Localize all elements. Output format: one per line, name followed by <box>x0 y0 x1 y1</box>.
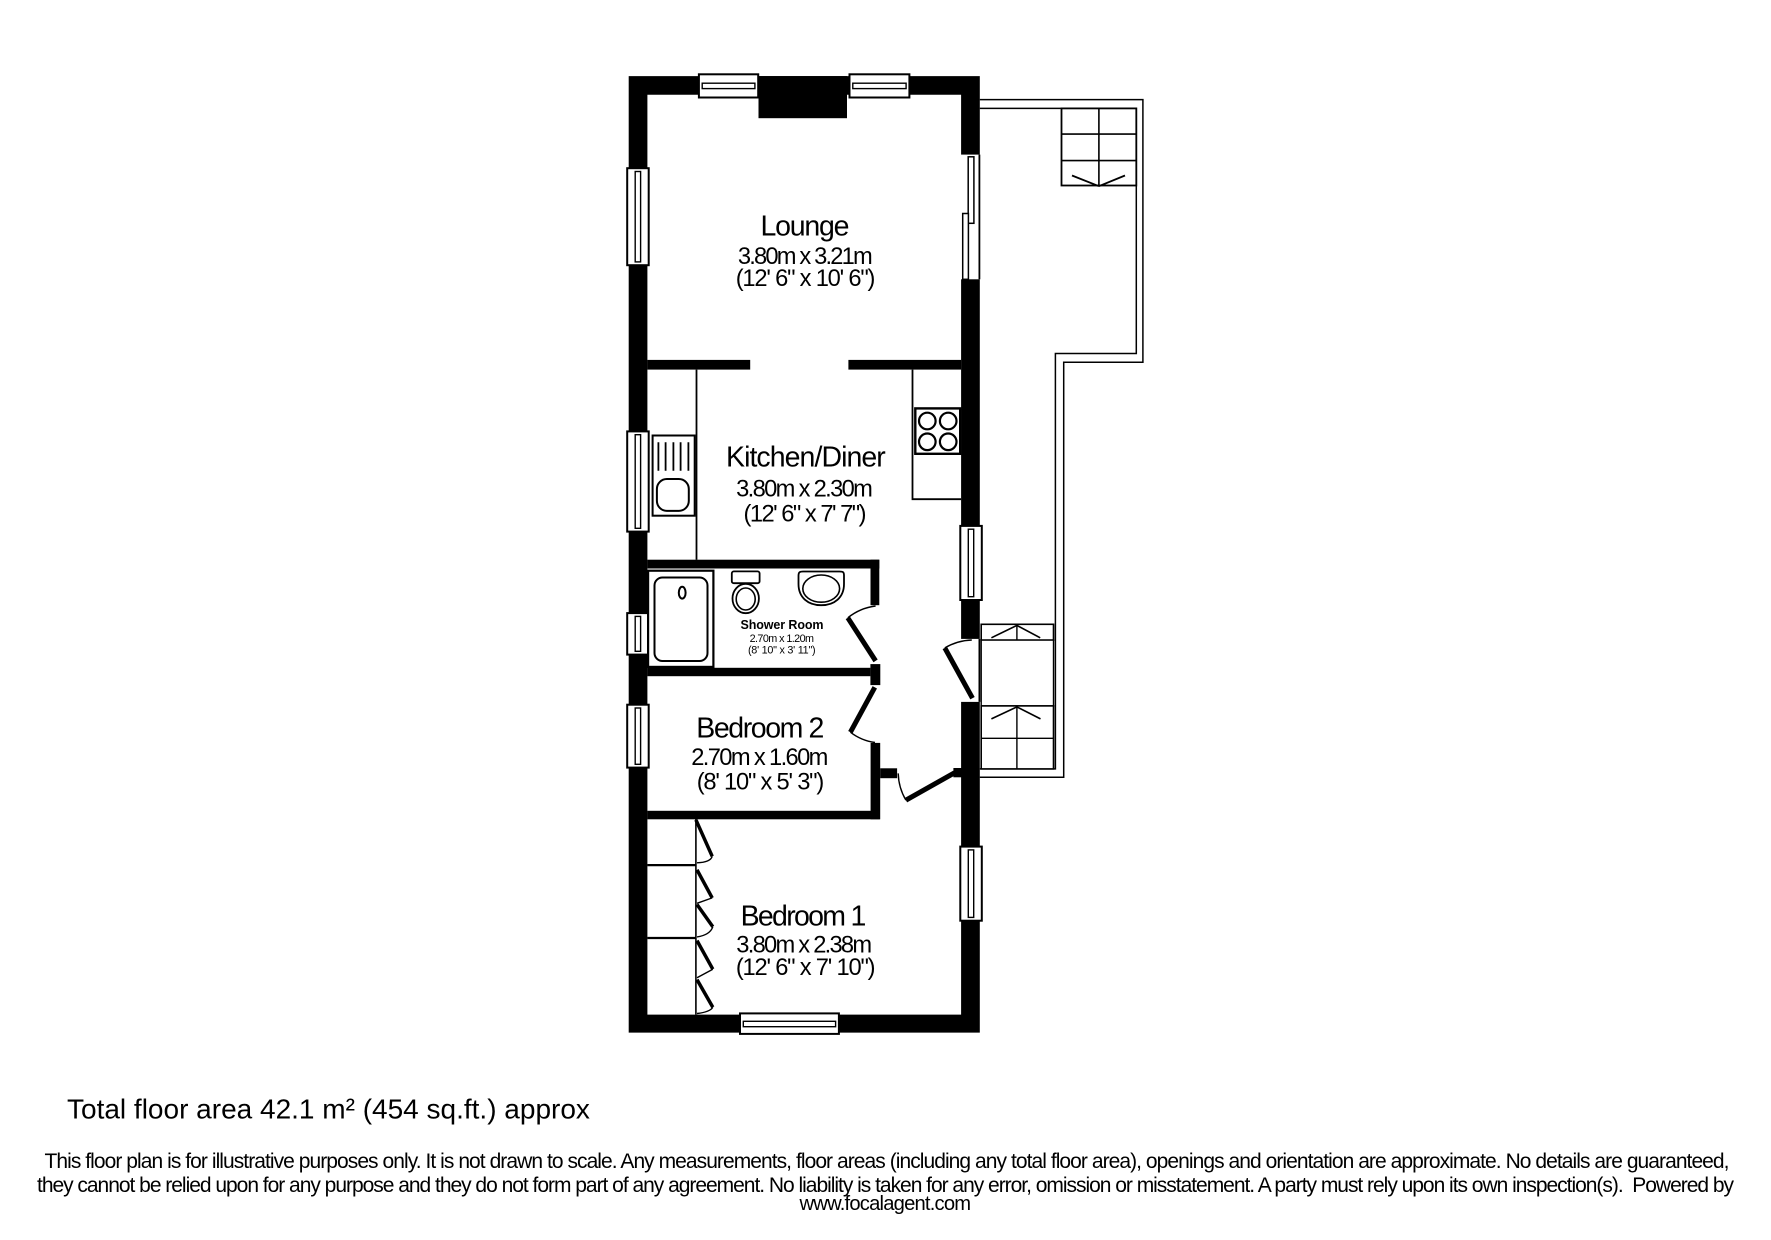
svg-text:Bedroom 1: Bedroom 1 <box>741 901 867 933</box>
svg-text:(12' 6" x 7' 10"): (12' 6" x 7' 10") <box>736 955 876 981</box>
svg-text:www.focalagent.com: www.focalagent.com <box>799 1193 972 1215</box>
svg-text:This floor plan is for illustr: This floor plan is for illustrative purp… <box>45 1150 1730 1173</box>
svg-text:(8' 10" x 5' 3"): (8' 10" x 5' 3") <box>697 769 825 795</box>
svg-text:2.70m x 1.20m: 2.70m x 1.20m <box>750 633 814 645</box>
svg-text:(12' 6" x 10' 6"): (12' 6" x 10' 6") <box>736 266 876 292</box>
svg-text:2.70m x 1.60m: 2.70m x 1.60m <box>691 745 828 771</box>
svg-text:Bedroom 2: Bedroom 2 <box>696 713 824 745</box>
svg-text:3.80m x 2.30m: 3.80m x 2.30m <box>736 477 873 503</box>
svg-text:(12' 6" x 7' 7"): (12' 6" x 7' 7") <box>743 502 866 528</box>
svg-text:Lounge: Lounge <box>761 211 850 243</box>
svg-text:Total floor area 42.1 m² (454: Total floor area 42.1 m² (454 sq.ft.) ap… <box>67 1094 590 1125</box>
svg-text:(8' 10" x 3' 11"): (8' 10" x 3' 11") <box>748 644 816 656</box>
svg-text:Shower Room: Shower Room <box>741 618 824 632</box>
svg-text:Kitchen/Diner: Kitchen/Diner <box>726 442 886 474</box>
